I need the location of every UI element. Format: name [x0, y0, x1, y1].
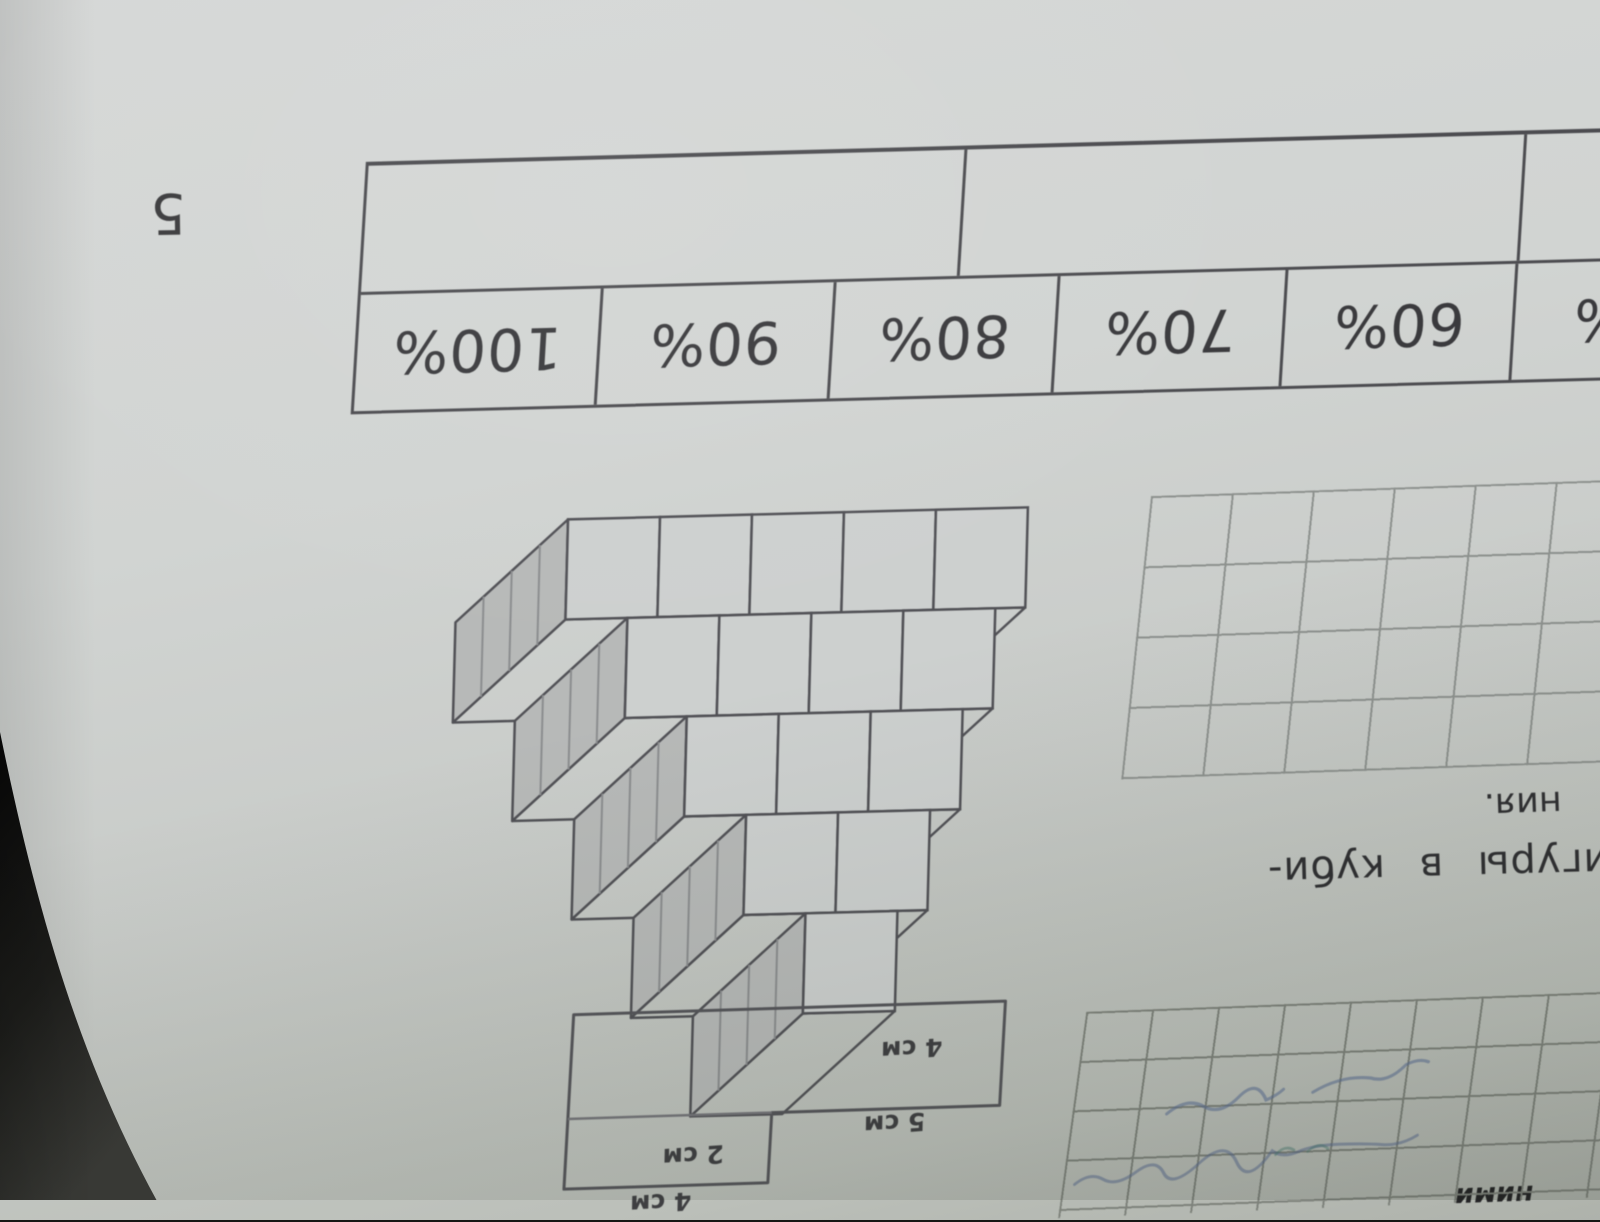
photo-of-worksheet: { "page": { "task_number": "5", "table":…	[0, 0, 1600, 1200]
dark-surface-corner	[0, 0, 1600, 1200]
